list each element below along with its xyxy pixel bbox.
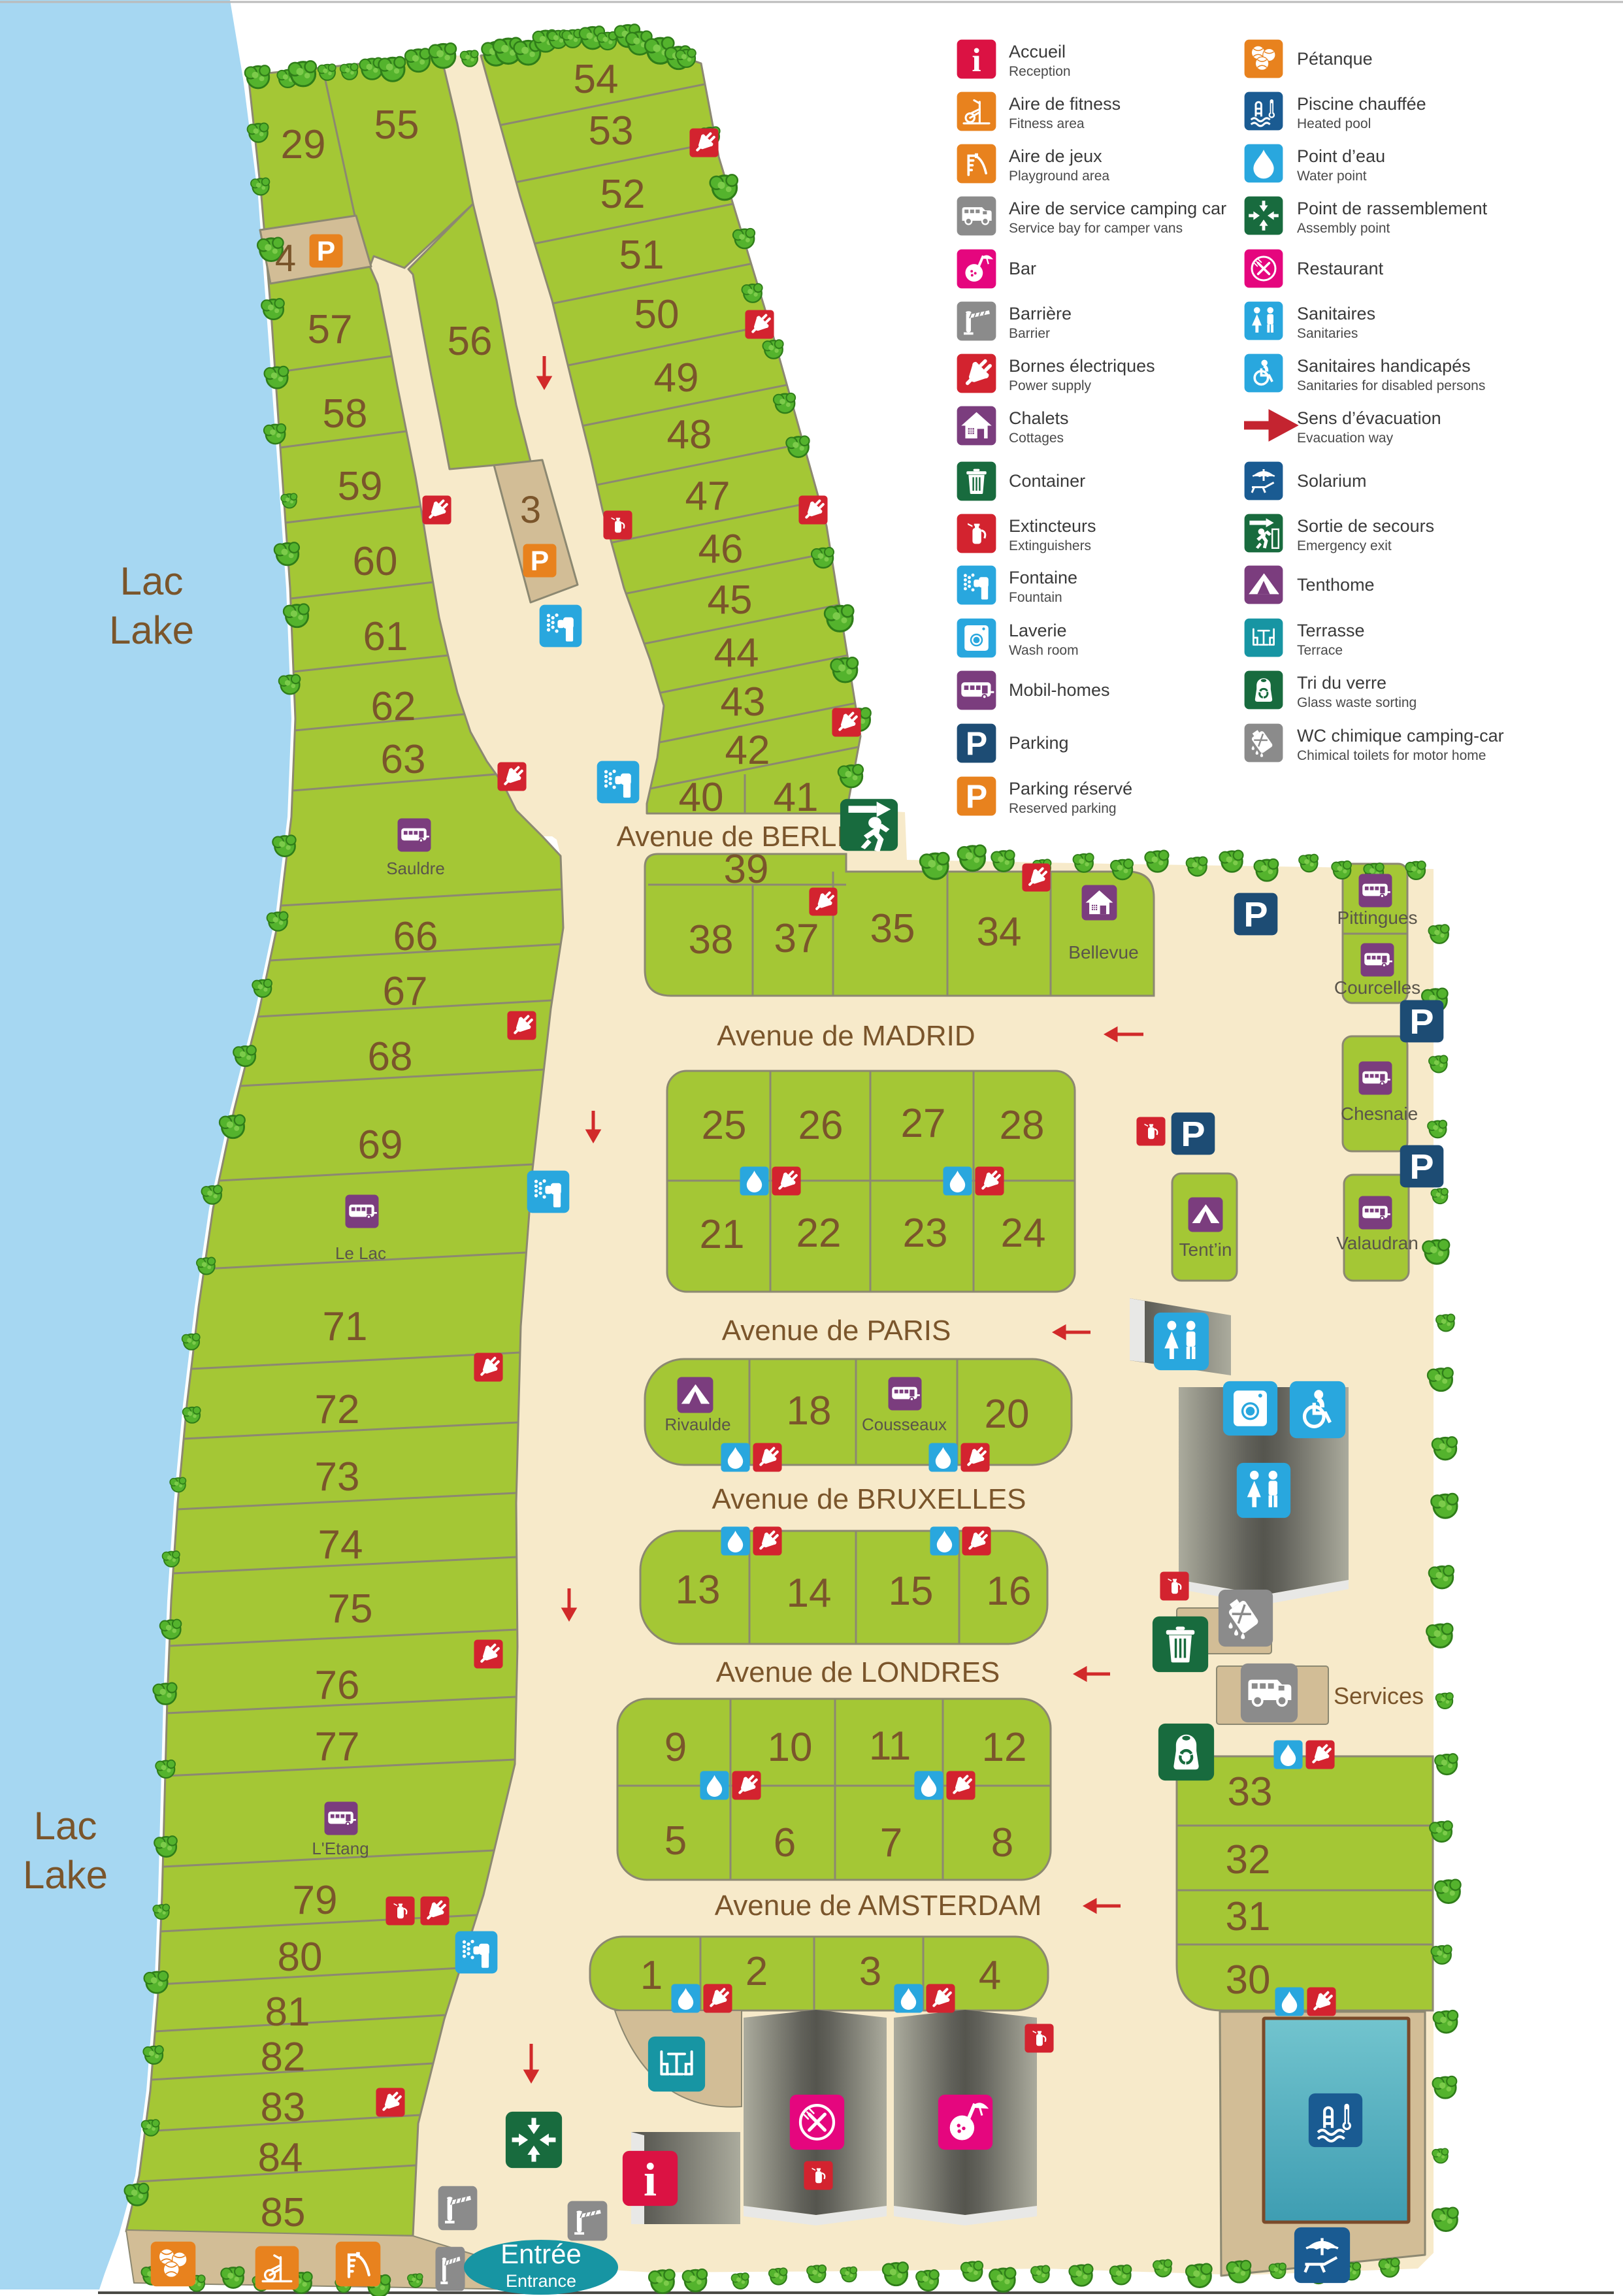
svg-text:Wash room: Wash room: [1009, 643, 1079, 658]
svg-text:Water point: Water point: [1297, 169, 1367, 184]
svg-text:Lake: Lake: [109, 608, 194, 652]
svg-text:4: 4: [275, 237, 296, 280]
svg-text:Fontaine: Fontaine: [1009, 568, 1077, 587]
svg-text:Bar: Bar: [1009, 259, 1036, 278]
svg-text:Lake: Lake: [23, 1853, 108, 1897]
svg-text:Reception: Reception: [1009, 64, 1071, 79]
svg-text:33: 33: [1228, 1769, 1273, 1814]
svg-text:Rivaulde: Rivaulde: [664, 1415, 730, 1434]
svg-text:15: 15: [889, 1569, 934, 1614]
svg-text:5: 5: [664, 1818, 687, 1863]
svg-text:3: 3: [859, 1949, 881, 1994]
svg-text:47: 47: [685, 474, 730, 519]
svg-text:80: 80: [278, 1935, 323, 1980]
svg-text:50: 50: [634, 292, 680, 337]
svg-text:Mobil-homes: Mobil-homes: [1009, 680, 1110, 700]
svg-text:Chalets: Chalets: [1009, 408, 1069, 428]
svg-text:71: 71: [323, 1304, 368, 1349]
svg-text:55: 55: [374, 103, 419, 148]
svg-text:Playground area: Playground area: [1009, 169, 1109, 184]
svg-text:48: 48: [667, 412, 712, 457]
svg-text:Extincteurs: Extincteurs: [1009, 516, 1096, 536]
svg-text:59: 59: [338, 464, 383, 509]
svg-text:69: 69: [358, 1123, 403, 1168]
svg-text:37: 37: [774, 916, 819, 961]
svg-text:1: 1: [640, 1953, 663, 1998]
svg-text:31: 31: [1226, 1894, 1271, 1939]
svg-text:32: 32: [1226, 1837, 1271, 1882]
svg-text:Extinguishers: Extinguishers: [1009, 538, 1091, 553]
svg-text:Avenue de BRUXELLES: Avenue de BRUXELLES: [712, 1483, 1026, 1515]
svg-text:2: 2: [746, 1949, 768, 1994]
svg-text:75: 75: [328, 1586, 373, 1632]
svg-text:22: 22: [796, 1211, 842, 1256]
svg-text:Solarium: Solarium: [1297, 471, 1367, 491]
svg-text:68: 68: [368, 1034, 413, 1079]
svg-text:73: 73: [315, 1454, 360, 1500]
svg-text:40: 40: [679, 775, 724, 820]
svg-text:21: 21: [700, 1212, 745, 1257]
svg-text:Restaurant: Restaurant: [1297, 259, 1384, 278]
svg-text:Laverie: Laverie: [1009, 621, 1067, 640]
svg-text:Sens d’évacuation: Sens d’évacuation: [1297, 408, 1441, 428]
svg-text:24: 24: [1001, 1211, 1046, 1256]
svg-text:11: 11: [869, 1724, 911, 1769]
svg-text:Sanitaries for disabled person: Sanitaries for disabled persons: [1297, 378, 1485, 393]
svg-text:Entrée: Entrée: [500, 2239, 582, 2269]
svg-text:Aire de service camping car: Aire de service camping car: [1009, 199, 1226, 218]
svg-text:45: 45: [708, 578, 753, 623]
svg-text:Sortie de secours: Sortie de secours: [1297, 516, 1434, 536]
svg-text:Pétanque: Pétanque: [1297, 49, 1373, 69]
svg-text:41: 41: [774, 775, 819, 820]
svg-text:Sanitaries: Sanitaries: [1297, 326, 1358, 341]
svg-text:Heated pool: Heated pool: [1297, 116, 1371, 131]
svg-text:Parking: Parking: [1009, 733, 1069, 753]
svg-text:Sanitaires handicapés: Sanitaires handicapés: [1297, 356, 1471, 376]
svg-text:54: 54: [574, 57, 619, 102]
svg-text:Bellevue: Bellevue: [1068, 942, 1138, 962]
svg-text:34: 34: [977, 910, 1022, 955]
svg-text:Tri du verre: Tri du verre: [1297, 673, 1386, 693]
svg-text:62: 62: [371, 684, 416, 729]
svg-text:Terrasse: Terrasse: [1297, 621, 1365, 640]
svg-text:Parking réservé: Parking réservé: [1009, 779, 1132, 798]
svg-text:52: 52: [600, 172, 646, 217]
svg-text:79: 79: [293, 1878, 338, 1923]
svg-text:Piscine chauffée: Piscine chauffée: [1297, 94, 1426, 114]
svg-text:Tent’in: Tent’in: [1179, 1239, 1232, 1260]
svg-text:Aire de jeux: Aire de jeux: [1009, 146, 1102, 166]
svg-text:Accueil: Accueil: [1009, 42, 1066, 61]
svg-text:Emergency exit: Emergency exit: [1297, 538, 1392, 553]
svg-text:58: 58: [323, 391, 368, 436]
svg-text:61: 61: [363, 614, 408, 659]
svg-text:67: 67: [383, 969, 428, 1014]
svg-text:L'Etang: L'Etang: [312, 1839, 369, 1858]
svg-text:Lac: Lac: [120, 559, 184, 603]
svg-text:Service bay for camper vans: Service bay for camper vans: [1009, 221, 1183, 236]
svg-text:82: 82: [261, 2035, 306, 2080]
svg-text:85: 85: [261, 2190, 306, 2235]
svg-text:13: 13: [676, 1567, 721, 1613]
svg-text:Courcelles: Courcelles: [1334, 977, 1420, 998]
svg-text:28: 28: [1000, 1103, 1045, 1148]
svg-text:Glass waste sorting: Glass waste sorting: [1297, 695, 1417, 710]
svg-text:Container: Container: [1009, 471, 1085, 491]
svg-text:66: 66: [393, 914, 438, 959]
svg-text:Sanitaires: Sanitaires: [1297, 304, 1375, 323]
svg-text:12: 12: [982, 1725, 1027, 1770]
svg-text:77: 77: [315, 1724, 360, 1769]
svg-text:7: 7: [880, 1820, 902, 1865]
svg-text:18: 18: [787, 1388, 832, 1434]
svg-text:WC chimique camping-car: WC chimique camping-car: [1297, 726, 1504, 746]
svg-text:Avenue de MADRID: Avenue de MADRID: [717, 1020, 975, 1052]
svg-text:Valaudran: Valaudran: [1336, 1233, 1418, 1253]
svg-text:8: 8: [991, 1820, 1013, 1865]
svg-text:Lac: Lac: [34, 1804, 97, 1848]
svg-text:74: 74: [318, 1522, 363, 1567]
svg-text:Barrier: Barrier: [1009, 326, 1050, 341]
svg-text:Chimical toilets for motor hom: Chimical toilets for motor home: [1297, 748, 1486, 763]
svg-text:4: 4: [979, 1953, 1001, 1998]
svg-text:16: 16: [987, 1569, 1032, 1614]
svg-text:Aire de fitness: Aire de fitness: [1009, 94, 1121, 114]
svg-text:Fitness area: Fitness area: [1009, 116, 1085, 131]
svg-text:Pittingues: Pittingues: [1337, 908, 1418, 928]
svg-text:14: 14: [787, 1571, 832, 1616]
svg-text:Evacuation way: Evacuation way: [1297, 431, 1394, 446]
svg-text:43: 43: [721, 680, 766, 725]
svg-text:Sauldre: Sauldre: [386, 859, 445, 878]
svg-text:51: 51: [619, 233, 664, 278]
svg-text:Avenue de BERLIN: Avenue de BERLIN: [617, 821, 866, 853]
svg-text:Entrance: Entrance: [506, 2271, 576, 2291]
svg-text:81: 81: [265, 1990, 310, 2035]
svg-text:10: 10: [768, 1725, 813, 1770]
svg-text:72: 72: [315, 1387, 360, 1432]
svg-text:25: 25: [702, 1103, 747, 1148]
svg-text:Avenue de PARIS: Avenue de PARIS: [722, 1315, 951, 1347]
svg-text:63: 63: [381, 737, 426, 782]
svg-text:Assembly point: Assembly point: [1297, 221, 1390, 236]
svg-text:Reserved parking: Reserved parking: [1009, 801, 1117, 816]
svg-text:26: 26: [798, 1103, 844, 1148]
svg-text:Terrace: Terrace: [1297, 643, 1343, 658]
svg-text:Cousseaux: Cousseaux: [862, 1415, 947, 1434]
svg-text:27: 27: [901, 1101, 946, 1146]
svg-text:39: 39: [724, 847, 769, 892]
svg-text:Bornes électriques: Bornes électriques: [1009, 356, 1155, 376]
svg-text:20: 20: [985, 1392, 1030, 1437]
svg-text:23: 23: [903, 1211, 948, 1256]
svg-text:Avenue de LONDRES: Avenue de LONDRES: [716, 1656, 1000, 1688]
svg-text:35: 35: [870, 906, 915, 951]
svg-text:6: 6: [774, 1820, 796, 1865]
svg-text:57: 57: [308, 307, 353, 352]
svg-text:76: 76: [315, 1663, 360, 1708]
svg-text:Avenue de AMSTERDAM: Avenue de AMSTERDAM: [715, 1890, 1042, 1922]
svg-text:53: 53: [589, 108, 634, 154]
svg-text:9: 9: [664, 1725, 687, 1770]
svg-text:Le Lac: Le Lac: [335, 1243, 386, 1263]
svg-text:Cottages: Cottages: [1009, 431, 1064, 446]
svg-text:30: 30: [1226, 1958, 1271, 2003]
svg-text:49: 49: [654, 355, 699, 401]
svg-text:Barrière: Barrière: [1009, 304, 1072, 323]
svg-text:29: 29: [281, 122, 326, 167]
svg-text:42: 42: [725, 728, 770, 773]
svg-text:Power supply: Power supply: [1009, 378, 1092, 393]
svg-text:44: 44: [714, 631, 759, 676]
svg-text:83: 83: [261, 2085, 306, 2130]
svg-text:84: 84: [258, 2135, 303, 2180]
svg-text:3: 3: [520, 489, 541, 531]
svg-text:Chesnaie: Chesnaie: [1341, 1104, 1418, 1124]
svg-text:Services: Services: [1334, 1682, 1424, 1709]
svg-text:Point de rassemblement: Point de rassemblement: [1297, 199, 1488, 218]
svg-text:Fountain: Fountain: [1009, 590, 1062, 605]
svg-text:38: 38: [689, 917, 734, 962]
svg-text:Tenthome: Tenthome: [1297, 575, 1375, 595]
svg-text:56: 56: [448, 319, 493, 364]
svg-text:60: 60: [353, 539, 398, 584]
svg-text:Point d’eau: Point d’eau: [1297, 146, 1385, 166]
svg-text:46: 46: [698, 527, 744, 572]
